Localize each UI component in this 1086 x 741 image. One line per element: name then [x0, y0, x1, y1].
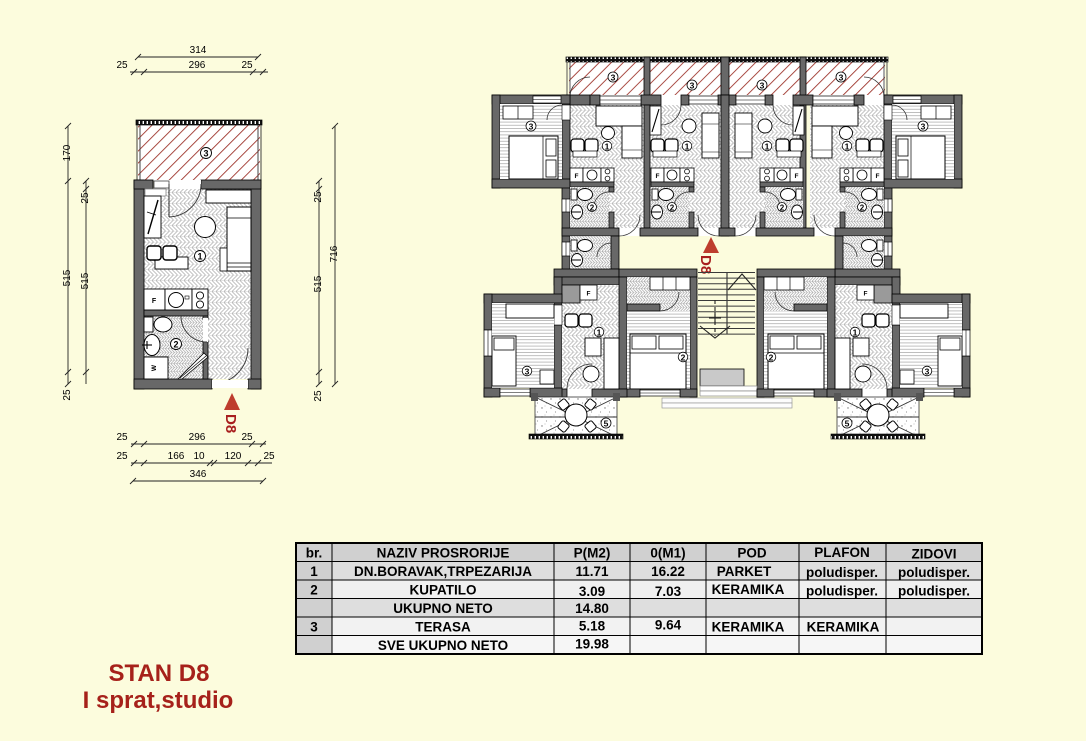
svg-text:KERAMIKA: KERAMIKA	[712, 582, 785, 597]
svg-text:br.: br.	[306, 546, 323, 561]
svg-text:120: 120	[225, 451, 242, 462]
svg-text:PARKET: PARKET	[717, 564, 772, 579]
svg-text:D8: D8	[222, 414, 239, 433]
svg-text:716: 716	[329, 245, 340, 262]
svg-text:3: 3	[525, 366, 530, 376]
svg-text:3: 3	[839, 72, 844, 82]
svg-text:515: 515	[80, 272, 91, 289]
svg-text:296: 296	[189, 60, 206, 71]
svg-text:1: 1	[845, 141, 850, 151]
svg-text:2: 2	[670, 203, 675, 212]
svg-text:PLAFON: PLAFON	[814, 545, 870, 560]
svg-text:poludisper.: poludisper.	[898, 584, 970, 599]
svg-text:UKUPNO NETO: UKUPNO NETO	[393, 601, 493, 616]
svg-text:2: 2	[310, 583, 318, 598]
svg-text:W: W	[151, 364, 158, 371]
svg-text:3: 3	[760, 80, 765, 90]
svg-text:515: 515	[313, 275, 324, 292]
svg-text:3: 3	[529, 121, 534, 131]
svg-text:1: 1	[310, 564, 318, 579]
svg-text:10: 10	[193, 451, 205, 462]
svg-text:KERAMIKA: KERAMIKA	[712, 620, 785, 635]
svg-text:F: F	[795, 173, 799, 180]
svg-text:25: 25	[313, 191, 324, 203]
svg-text:1: 1	[605, 141, 610, 151]
svg-text:2: 2	[780, 203, 785, 212]
svg-text:3.09: 3.09	[579, 584, 605, 599]
svg-text:5.18: 5.18	[579, 619, 606, 634]
svg-text:STAN D8: STAN D8	[109, 660, 210, 687]
svg-text:25: 25	[116, 60, 128, 71]
svg-text:3: 3	[925, 366, 930, 376]
svg-text:SVE UKUPNO NETO: SVE UKUPNO NETO	[378, 638, 508, 653]
svg-text:F: F	[864, 291, 868, 298]
svg-text:1: 1	[853, 327, 858, 337]
svg-text:POD: POD	[737, 546, 767, 561]
svg-text:25: 25	[116, 451, 128, 462]
svg-text:25: 25	[313, 390, 324, 402]
svg-text:poludisper.: poludisper.	[898, 565, 970, 580]
svg-text:25: 25	[116, 432, 128, 443]
svg-text:3: 3	[203, 149, 208, 159]
svg-text:2: 2	[173, 340, 178, 350]
svg-text:F: F	[876, 173, 880, 180]
svg-text:16.22: 16.22	[651, 564, 685, 579]
svg-text:1: 1	[597, 327, 602, 337]
svg-text:KERAMIKA: KERAMIKA	[807, 620, 880, 635]
svg-text:NAZIV PROSRORIJE: NAZIV PROSRORIJE	[377, 546, 510, 561]
svg-text:2: 2	[681, 352, 686, 362]
svg-text:1: 1	[765, 141, 770, 151]
svg-text:2: 2	[769, 352, 774, 362]
svg-text:25: 25	[263, 451, 275, 462]
svg-text:25: 25	[62, 389, 73, 401]
svg-text:25: 25	[241, 432, 253, 443]
svg-text:5: 5	[604, 418, 609, 428]
svg-text:25: 25	[80, 192, 91, 204]
svg-text:1: 1	[197, 252, 202, 262]
svg-text:296: 296	[189, 432, 206, 443]
svg-text:5: 5	[845, 418, 850, 428]
svg-text:314: 314	[190, 45, 207, 56]
svg-text:poludisper.: poludisper.	[806, 565, 878, 580]
svg-text:F: F	[587, 291, 591, 298]
svg-text:3: 3	[611, 72, 616, 82]
svg-text:9.64: 9.64	[655, 618, 682, 633]
svg-text:P(M2): P(M2)	[574, 546, 611, 561]
svg-text:3: 3	[690, 80, 695, 90]
svg-text:I sprat,studio: I sprat,studio	[83, 687, 234, 714]
svg-text:ZIDOVI: ZIDOVI	[911, 547, 956, 562]
svg-text:poludisper.: poludisper.	[806, 584, 878, 599]
svg-text:TERASA: TERASA	[415, 620, 471, 635]
svg-text:346: 346	[190, 469, 207, 480]
svg-text:515: 515	[62, 269, 73, 286]
svg-text:0(M1): 0(M1)	[650, 546, 685, 561]
svg-text:1: 1	[685, 141, 690, 151]
svg-text:170: 170	[62, 144, 73, 161]
svg-text:F: F	[656, 173, 660, 180]
svg-text:KUPATILO: KUPATILO	[410, 583, 477, 598]
svg-text:3: 3	[921, 121, 926, 131]
svg-text:F: F	[152, 298, 157, 305]
svg-text:D8: D8	[697, 255, 714, 274]
svg-text:3: 3	[310, 620, 318, 635]
svg-text:19.98: 19.98	[575, 637, 609, 652]
svg-text:14.80: 14.80	[575, 601, 609, 616]
svg-text:7.03: 7.03	[655, 584, 682, 599]
svg-text:166: 166	[168, 451, 185, 462]
svg-text:F: F	[575, 173, 579, 180]
svg-text:2: 2	[590, 203, 595, 212]
svg-text:2: 2	[860, 203, 865, 212]
svg-text:25: 25	[241, 60, 253, 71]
svg-text:DN.BORAVAK,TRPEZARIJA: DN.BORAVAK,TRPEZARIJA	[354, 564, 532, 579]
svg-text:11.71: 11.71	[575, 564, 609, 579]
